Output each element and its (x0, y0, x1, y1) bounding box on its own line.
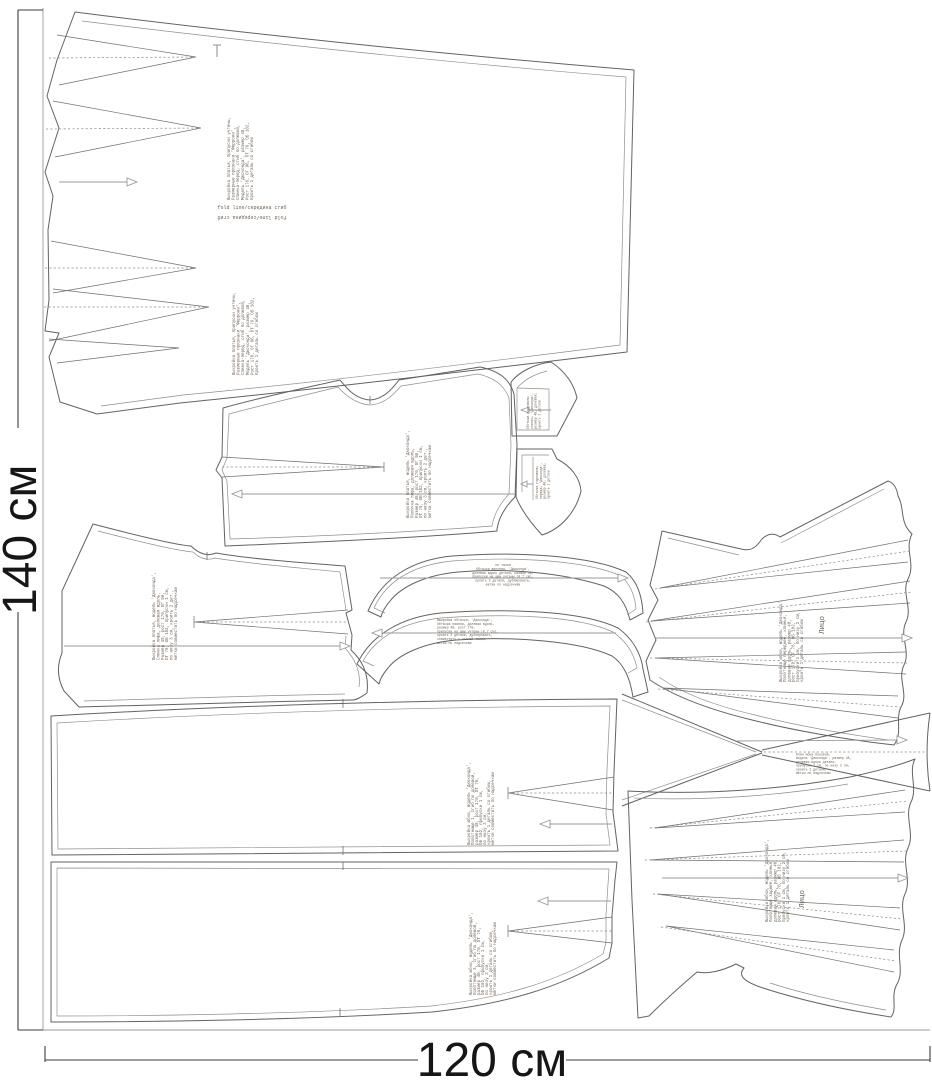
annotation-block: Выкройка юбки, модель 'Джоконда', Полотн… (765, 839, 791, 922)
annotation-line: Выкройка платья, припуски учтены, (232, 292, 237, 375)
grain-line-arrow (232, 490, 514, 498)
annotation-block: Клин юбки боковой, модель 'Джоконда', ра… (796, 753, 852, 776)
annotation-line: Размерные признаки 'Феррони', (237, 302, 242, 375)
dart-skirt-panel-1 (508, 777, 614, 810)
annotation-line: Выкройка платья, модель 'Джоконда', (152, 572, 157, 660)
annotation-block: Выкройка юбки, модель 'Джоконда', Полотн… (467, 762, 496, 845)
annotation-block: Выкройка обтачки, 'Джоконда', Обтачка ни… (437, 618, 498, 645)
piece-front-bodice: Выкройка платья, модель 'Джоконда', Поло… (216, 367, 517, 546)
grain-line-arrow (59, 178, 137, 186)
annotation-block-lower: Выкройка платья, припуски учтены, Размер… (232, 292, 260, 375)
svg-text:fold line/середина сгиб: fold line/середина сгиб (217, 205, 286, 211)
piece-skirt-back: Лицо Выкройка юбки, модель 'Джоконда', П… (628, 759, 915, 1018)
piece-back-bodice: Выкройка платья, модель 'Джоконда', Спин… (58, 524, 367, 707)
annotation-line: Рост 170, ОГ 96, ОТ 76, ОБ 102, (246, 122, 250, 200)
annotation-block: Обтачка горловины спинки, 'Джоконда', ра… (526, 393, 541, 429)
annotation-line: метки по надсечкам (796, 771, 831, 775)
piece-skirt-front: Лицо Выкройка юбки, модель 'Джоконда', П… (646, 481, 912, 745)
annotation-block: Обтачка горловины переда, 'Джоконда', ра… (535, 463, 550, 499)
height-dimension: 140 см (0, 10, 47, 1030)
annotation-line: ОТ 76, ОБ 102, припуски 1 см, (420, 445, 424, 518)
pattern-cutting-layout: 140 см 120 см Выкройка платья, припуски … (0, 0, 932, 1080)
grain-line-arrow (64, 642, 350, 650)
annotation-line: метки совместить по надсечкам (429, 445, 433, 518)
piece-back-dress: Выкройка платья, припуски учтены, Размер… (44, 12, 634, 414)
annotation-line: метки совместить по надсечкам (492, 772, 496, 845)
annotation-line: Выкройка платья, припуски учтены, (227, 117, 232, 200)
annotation-line: кроить 2 детали (546, 470, 550, 499)
fabric-edges (43, 8, 930, 1030)
dart-front-bodice (222, 457, 384, 477)
annotation-line: метки по надсечкам (486, 583, 521, 587)
annotation-line: Рост 170, ОГ 96, ОТ 76, ОБ 102, (251, 297, 255, 375)
dart-back-bodice (194, 610, 348, 634)
annotation-line: Модель 'Джоконда', размер 48, (241, 127, 246, 200)
piece-gusset: Клин юбки боковой, модель 'Джоконда', ра… (622, 694, 930, 806)
fabric-face-label: Лицо (799, 889, 807, 908)
fabric-face-label: Лицо (819, 615, 827, 634)
annotation-line: Спинка-перед, сгиб по долевой, (241, 300, 246, 375)
darts-back-dress (44, 35, 209, 363)
cutting-layout-svg: 140 см 120 см Выкройка платья, припуски … (0, 0, 932, 1080)
dart-skirt-panel-2 (508, 917, 612, 943)
annotation-block: Выкройка юбки, модель 'Джоконда', Полотн… (469, 912, 498, 995)
annotation-line: кроить 1 деталь со сгибом (800, 619, 805, 682)
annotation-line: Полочка лифа, долевая вдоль, (410, 448, 415, 518)
annotation-line: ОТ 76, ОБ 102, припуски 1 см, (166, 587, 170, 660)
annotation-line: метки совместить по надсечкам (175, 587, 179, 660)
piece-skirt-panel-1: Выкройка юбки, модель 'Джоконда', Полотн… (51, 699, 618, 855)
piece-facing-lower: Выкройка обтачки, 'Джоконда', Обтачка ни… (357, 611, 648, 697)
annotation-block: по талии Обтачка верхняя, 'Джоконда', до… (472, 563, 533, 587)
fold-line-note: fold line/середина сгиб fold line/середи… (217, 205, 286, 220)
height-dimension-label: 140 см (0, 465, 47, 615)
annotation-line: Размер 48, рост 170, ОГ 96, (416, 450, 420, 518)
annotation-line: метки по надсечкам (437, 641, 472, 645)
grain-line-arrow (540, 820, 612, 828)
annotation-line: Модель 'Джоконда', размер 48, (246, 302, 251, 375)
annotation-block: Выкройка платья, модель 'Джоконда', Поло… (406, 430, 433, 518)
piece-collar-top: Обтачка горловины спинки, 'Джоконда', ра… (511, 362, 577, 436)
annotation-line: Кроить 1 деталь со сгибом (250, 137, 255, 200)
annotation-line: Размер 48, рост 170, ОГ 96, (162, 592, 166, 660)
annotation-line: Кроить 1 деталь со сгибом (255, 312, 260, 375)
width-dimension-label: 120 см (417, 1034, 567, 1080)
annotation-line: по низу 3 см, кроить 2 дет., (171, 590, 175, 660)
grain-line-arrow (521, 481, 533, 487)
annotation-line: Выкройка платья, модель 'Джоконда', (406, 430, 411, 518)
annotation-block: Выкройка платья, модель 'Джоконда', Спин… (152, 572, 179, 660)
piece-facing-upper: по талии Обтачка верхняя, 'Джоконда', до… (368, 554, 643, 620)
annotation-line: Спинка лифа, долевая вдоль, (156, 592, 161, 660)
annotation-line: метки совместить по надсечкам (494, 922, 498, 995)
width-dimension: 120 см (45, 1034, 930, 1080)
piece-collar-bottom: Обтачка горловины переда, 'Джоконда', ра… (516, 449, 581, 535)
annotation-line: кроить 1 деталь со сгибом (786, 859, 791, 922)
svg-text:fold line/середина сгиб: fold line/середина сгиб (217, 214, 286, 220)
annotation-line: Спинка-перед, сгиб по долевой, (236, 125, 241, 200)
annotation-line: Размерные признаки 'Феррони', (232, 127, 237, 200)
annotation-block-upper: Выкройка платья, припуски учтены, Размер… (227, 117, 255, 200)
pleat-wedges (646, 540, 912, 718)
annotation-line: по низу 3 см, кроить 2 дет., (425, 448, 429, 518)
piece-skirt-panel-2: Выкройка юбки, модель 'Джоконда', Полотн… (51, 862, 617, 1022)
annotation-line: кроить 2 детали (537, 400, 541, 429)
grain-line-arrow (538, 897, 611, 905)
